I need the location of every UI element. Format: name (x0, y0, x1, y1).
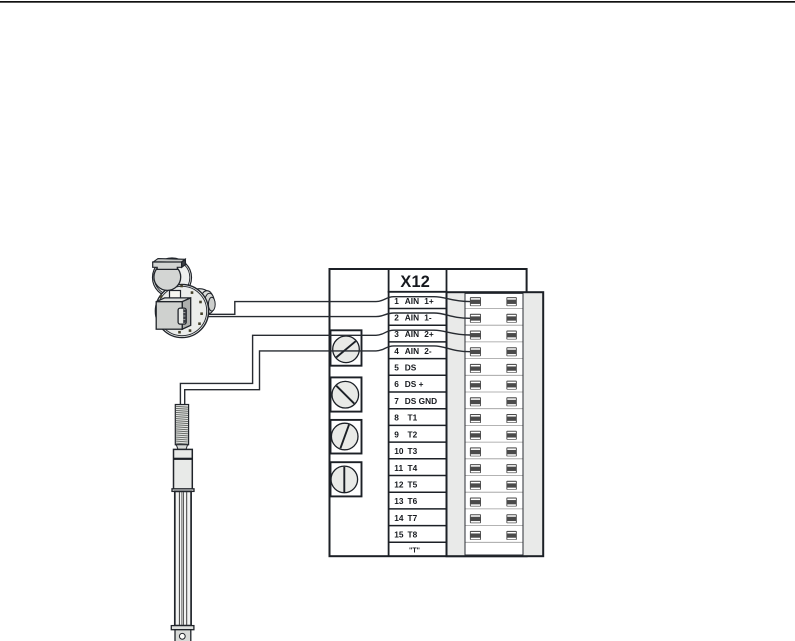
svg-text:5: 5 (394, 363, 399, 373)
svg-text:4: 4 (394, 346, 399, 356)
svg-text:T4: T4 (408, 463, 418, 473)
svg-text:6: 6 (394, 379, 399, 389)
svg-text:9: 9 (394, 429, 399, 439)
svg-text:14: 14 (394, 513, 404, 523)
svg-text:X12: X12 (400, 273, 430, 291)
svg-text:T2: T2 (408, 429, 418, 439)
svg-text:1-: 1- (424, 313, 432, 323)
svg-text:T3: T3 (408, 446, 418, 456)
svg-text:T1: T1 (408, 413, 418, 423)
svg-text:AIN: AIN (405, 313, 419, 323)
svg-text:2-: 2- (424, 346, 432, 356)
svg-text:DS: DS (405, 363, 417, 373)
svg-text:T8: T8 (408, 530, 418, 540)
svg-text:7: 7 (394, 396, 399, 406)
svg-text:AIN: AIN (405, 346, 419, 356)
svg-text:DS GND: DS GND (405, 396, 437, 406)
svg-text:"T": "T" (409, 547, 420, 554)
svg-text:12: 12 (394, 480, 404, 490)
svg-text:10: 10 (394, 446, 404, 456)
svg-text:13: 13 (394, 496, 404, 506)
svg-text:15: 15 (394, 530, 404, 540)
svg-text:T6: T6 (408, 496, 418, 506)
svg-text:T7: T7 (408, 513, 418, 523)
svg-text:2: 2 (394, 313, 399, 323)
svg-text:T5: T5 (408, 480, 418, 490)
svg-text:DS +: DS + (405, 379, 424, 389)
svg-text:11: 11 (394, 463, 403, 473)
svg-text:8: 8 (394, 413, 399, 423)
